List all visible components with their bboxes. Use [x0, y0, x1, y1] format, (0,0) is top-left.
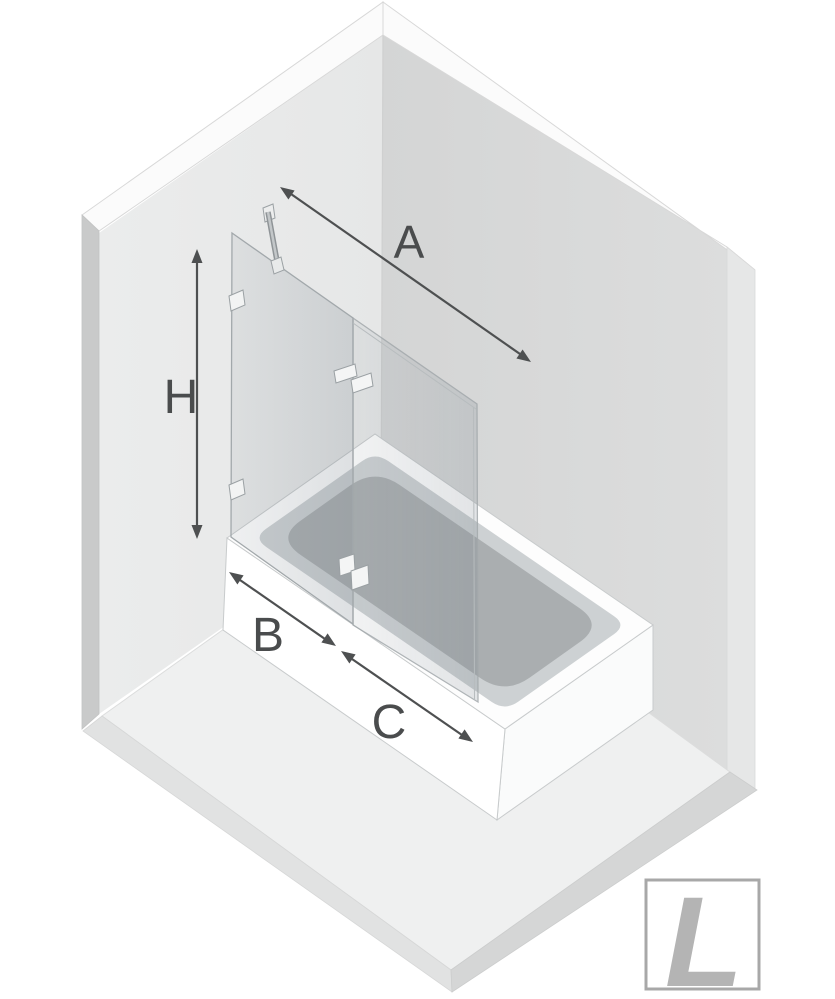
orientation-badge-letter: L: [665, 871, 743, 999]
dimension-label-b: B: [252, 609, 284, 662]
dimension-label-a: A: [394, 216, 425, 268]
orientation-badge: L: [646, 871, 759, 999]
dimension-label-h: H: [164, 371, 199, 424]
left-wall-side-face: [82, 215, 99, 729]
dimension-label-c: C: [372, 696, 407, 749]
right-wall-side-face: [727, 247, 755, 789]
diagram-canvas: A H B C L: [0, 0, 835, 999]
bath-screen-diagram: A H B C L: [0, 0, 835, 999]
